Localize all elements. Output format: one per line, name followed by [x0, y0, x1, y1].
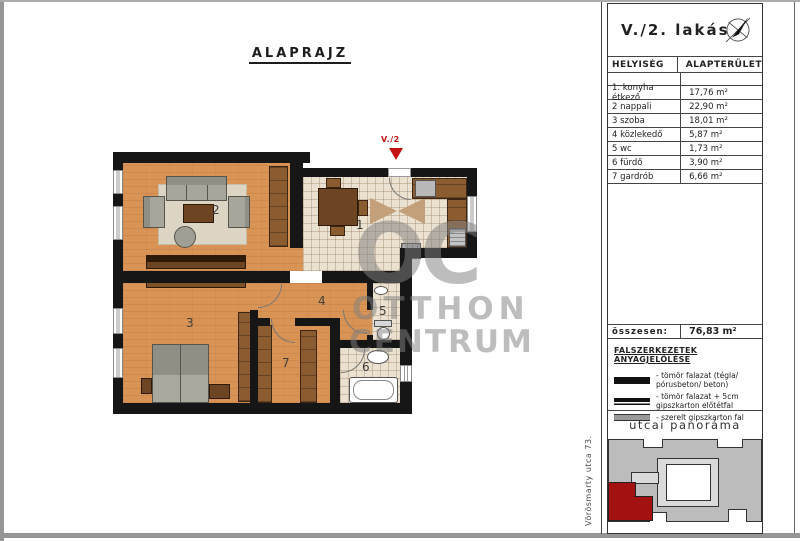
room-number-3: 3	[186, 316, 194, 330]
table-row: 6 fürdő 3,90 m²	[608, 156, 762, 170]
panel-separator-line	[601, 2, 602, 534]
table-row: 2 nappali 22,90 m²	[608, 100, 762, 114]
side-table	[209, 384, 230, 399]
armchair	[143, 196, 165, 228]
window	[113, 170, 123, 194]
coffee-table	[183, 204, 214, 223]
room-area: 6,66 m²	[681, 170, 762, 183]
total-label: összesen:	[608, 325, 681, 338]
wardrobe-column	[256, 325, 272, 403]
room-area: 1,73 m²	[681, 142, 762, 155]
page-border-right	[794, 2, 795, 533]
dining-table	[318, 188, 358, 226]
wall	[295, 318, 330, 326]
table-row: 1. konyha étkező 17,76 m²	[608, 86, 762, 100]
page-edge-left	[0, 0, 4, 541]
nightstand	[141, 378, 152, 394]
double-door-leaf	[398, 198, 425, 224]
column-header-area: ALAPTERÜLET	[678, 57, 762, 72]
legend-item: - tömör falazat + 5cm gipszkarton előtét…	[614, 392, 762, 410]
title-block-header: V./2. lakás	[608, 4, 762, 57]
window	[113, 308, 123, 334]
drawing-title-wrap: ALAPRAJZ	[240, 42, 360, 64]
site-courtyard	[666, 464, 711, 501]
double-door-leaf	[370, 198, 397, 224]
bathroom-sink	[367, 350, 389, 364]
wall	[113, 152, 310, 163]
wall	[340, 340, 412, 348]
drawing-title: ALAPRAJZ	[249, 46, 351, 64]
legend-section: FALSZERKEZETEK ANYAGJELÖLÉSE - tömör fal…	[608, 339, 762, 411]
table-row: 3 szoba 18,01 m²	[608, 114, 762, 128]
solid-wall-swatch	[614, 377, 650, 384]
legend-label: - tömör falazat (tégla/ pórusbeton/ beto…	[656, 371, 762, 389]
site-notch	[643, 439, 663, 448]
window	[467, 196, 477, 232]
title-block: V./2. lakás HELYISÉG ALAPTERÜLET 1. kony…	[607, 3, 763, 534]
entrance-arrow-icon	[389, 148, 403, 160]
wall	[250, 318, 270, 326]
wall	[367, 283, 373, 310]
wall	[303, 168, 388, 177]
wall	[467, 168, 477, 196]
kitchen-sink	[449, 228, 466, 247]
bed	[152, 344, 209, 403]
kitchen-corridor-floor	[303, 248, 400, 271]
room-name: 1. konyha étkező	[608, 86, 681, 99]
wardrobe-column	[300, 330, 317, 403]
table-row: 4 közlekedő 5,87 m²	[608, 128, 762, 142]
table-header-row: HELYISÉG ALAPTERÜLET	[608, 57, 762, 73]
total-row: összesen: 76,83 m²	[608, 325, 762, 339]
room-area: 3,90 m²	[681, 156, 762, 169]
legend-item: - tömör falazat (tégla/ pórusbeton/ beto…	[614, 371, 762, 389]
wall	[400, 382, 412, 414]
room-name: 2 nappali	[608, 100, 681, 113]
wc-sink	[374, 286, 388, 295]
room-name: 6 fürdő	[608, 156, 681, 169]
room-number-1: 1	[356, 218, 364, 232]
window	[113, 206, 123, 240]
dining-chair	[330, 226, 345, 236]
column-header-room: HELYISÉG	[608, 57, 678, 72]
dining-chair	[358, 200, 368, 216]
site-notch	[728, 509, 747, 522]
compass-icon	[721, 13, 755, 47]
room-name: 5 wc	[608, 142, 681, 155]
toilet-bowl	[377, 327, 390, 340]
room-number-6: 6	[362, 360, 370, 374]
room-number-2: 2	[212, 203, 220, 217]
bathtub-inner	[353, 380, 394, 400]
site-unit-highlight	[634, 496, 653, 521]
wall	[113, 403, 412, 414]
site-plan	[608, 437, 762, 533]
panorama-header: utcai panoráma	[608, 411, 762, 437]
table-empty-area	[608, 184, 762, 325]
room-area: 17,76 m²	[681, 86, 762, 99]
toilet-tank	[374, 320, 392, 327]
living-wardrobe	[269, 166, 288, 247]
wall	[322, 271, 400, 283]
site-unit-highlight	[608, 482, 636, 521]
fridge	[415, 180, 436, 197]
room-number-7: 7	[282, 356, 290, 370]
room-name: 3 szoba	[608, 114, 681, 127]
room-name: 4 közlekedő	[608, 128, 681, 141]
table-row: 7 gardrób 6,66 m²	[608, 170, 762, 184]
floorplan-sheet: { "page": { "drawing_title": "ALAPRAJZ" …	[0, 0, 800, 541]
wall	[113, 271, 290, 283]
room-name: 7 gardrób	[608, 170, 681, 183]
window	[400, 365, 412, 382]
street-label: Vörösmarty utca 73.	[584, 398, 598, 526]
dining-chair	[326, 178, 341, 188]
room-area: 22,90 m²	[681, 100, 762, 113]
sideboard	[146, 255, 246, 269]
room-area: 5,87 m²	[681, 128, 762, 141]
wall	[290, 152, 303, 248]
sofa	[166, 176, 227, 201]
entrance-label: V./2	[381, 135, 400, 144]
legend-title: FALSZERKEZETEK ANYAGJELÖLÉSE	[614, 346, 762, 364]
round-side-table	[174, 226, 196, 248]
total-area: 76,83 m²	[681, 325, 762, 338]
lined-wall-swatch	[614, 398, 650, 405]
wall	[330, 318, 340, 414]
room-number-5: 5	[379, 304, 387, 318]
unit-title: V./2. lakás	[608, 21, 730, 39]
page-edge-top	[0, 0, 800, 2]
room-number-4: 4	[318, 294, 326, 308]
wall	[412, 248, 477, 258]
window	[113, 348, 123, 378]
entrance-opening	[388, 168, 411, 177]
room-area: 18,01 m²	[681, 114, 762, 127]
armchair	[228, 196, 250, 228]
table-row: 5 wc 1,73 m²	[608, 142, 762, 156]
legend-label: - tömör falazat + 5cm gipszkarton előtét…	[656, 392, 762, 410]
site-notch	[717, 439, 743, 448]
